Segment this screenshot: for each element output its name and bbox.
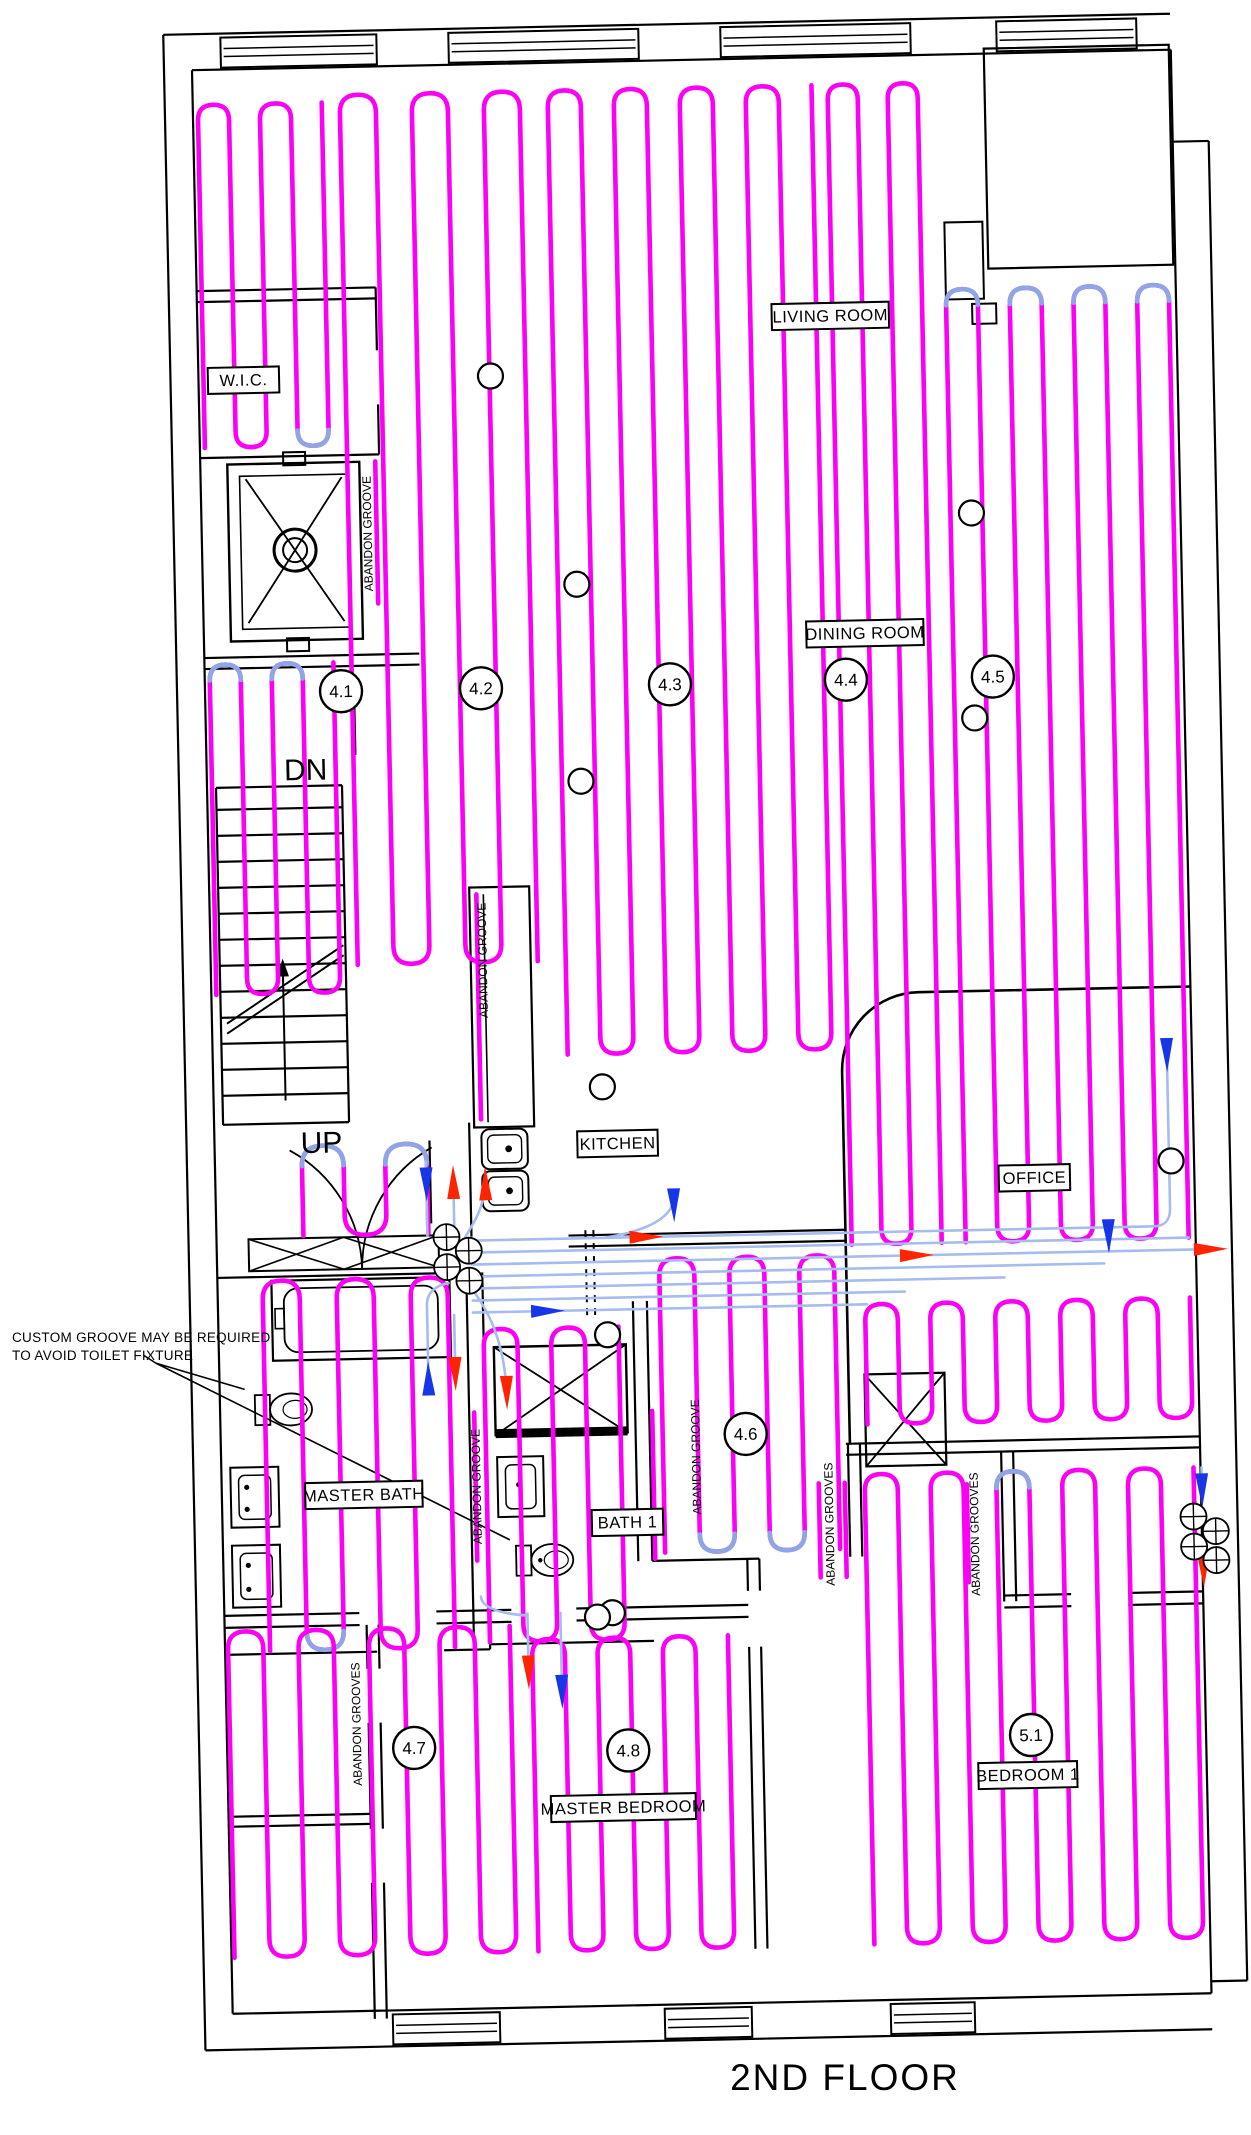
custom-groove-note-line2: TO AVOID TOILET FIXTURE <box>12 1348 193 1363</box>
supply-line <box>560 1613 562 1685</box>
fixture-dot <box>244 1485 249 1490</box>
window <box>720 23 911 57</box>
abandoned-groove <box>819 1483 821 1577</box>
fixture-dot <box>246 1563 251 1568</box>
wall-line <box>225 1652 377 1655</box>
floor-sensor <box>568 768 594 794</box>
supply-line <box>471 1286 507 1401</box>
zone-tag: 4.4 <box>834 670 858 689</box>
skylight-cross <box>246 477 345 623</box>
fixture-dot <box>506 1187 513 1194</box>
loop-return-bend <box>770 1532 805 1550</box>
wall-line <box>163 35 205 2051</box>
loop-return-bend <box>209 664 240 680</box>
wall-line <box>846 1436 1200 1443</box>
window <box>448 29 639 63</box>
zone-tag: 5.1 <box>1019 1726 1043 1745</box>
wall-line <box>1209 141 1248 1981</box>
room-label: MASTER BEDROOM <box>541 1797 707 1818</box>
wall-line <box>860 1444 862 1557</box>
fixture-dot <box>505 1145 512 1152</box>
flow-arrow-supply <box>900 1248 934 1262</box>
room-label: LIVING ROOM <box>772 306 888 326</box>
zone-tag: 4.3 <box>658 675 682 694</box>
zone-tag: 4.5 <box>981 667 1005 686</box>
wall-line <box>1013 1451 1016 1601</box>
wall-line <box>381 1723 383 1829</box>
wall-line <box>197 298 376 302</box>
wall-line <box>224 1613 359 1616</box>
sheet-title: 2ND FLOOR <box>730 2057 960 2098</box>
wall-line <box>846 1447 1200 1454</box>
heating-loop-wic <box>198 103 329 449</box>
bathtub-inner <box>284 1285 439 1352</box>
floor-sensor <box>959 500 985 526</box>
flow-arrow-return <box>1195 1473 1209 1507</box>
page: W.I.C.LIVING ROOMDINING ROOMKITCHENOFFIC… <box>0 0 1251 2135</box>
room-label: BEDROOM 1 <box>976 1765 1080 1785</box>
custom-groove-note-line1: CUSTOM GROOVE MAY BE REQUIRED <box>12 1330 271 1345</box>
supply-line <box>473 1292 905 1301</box>
abandoned-groove <box>652 1411 655 1559</box>
annotation-text: ABANDON GROOVES <box>821 1462 838 1586</box>
room-label: MASTER BATH <box>303 1485 425 1506</box>
wall-line <box>761 1647 767 1949</box>
loop-return-bend <box>1137 285 1169 302</box>
annotation-text: ABANDON GROOVE <box>360 476 376 592</box>
curved-wall <box>840 987 1199 1444</box>
annotation-text: ABANDON GROOVE <box>474 903 490 1019</box>
wall-line <box>1171 50 1212 1994</box>
loop-return-bend <box>271 663 302 679</box>
wall-line <box>217 833 343 836</box>
wall-line <box>216 807 342 810</box>
heating-loop-4.1 <box>209 662 340 995</box>
window <box>665 2007 753 2039</box>
wall-line <box>223 1122 349 1125</box>
annotation-text: ABANDON GROOVE <box>469 1429 485 1545</box>
wall-line <box>197 287 376 291</box>
flow-arrow-return <box>667 1188 681 1222</box>
abandoned-groove <box>845 1483 847 1577</box>
zone-tag: 4.7 <box>402 1739 426 1758</box>
annotation-text: ABANDON GROOVES <box>348 1662 365 1786</box>
sink <box>232 1545 281 1608</box>
wall-line <box>342 785 349 1122</box>
flow-arrow-return <box>531 1304 565 1318</box>
annotation-text: UP <box>300 1126 342 1160</box>
wall-line <box>759 1559 760 1591</box>
heating-loop-5.1 <box>865 1468 1204 1945</box>
loop-return-bend <box>1073 286 1105 303</box>
flow-arrow-return <box>1160 1038 1174 1072</box>
wall-line <box>469 1123 471 1237</box>
wall-line <box>747 1559 748 1591</box>
room-label: OFFICE <box>1002 1169 1066 1188</box>
heating-loop-4.5 <box>946 285 1189 1242</box>
floor-sensor <box>595 1322 621 1348</box>
floor-sensor <box>585 1604 611 1630</box>
fixture-dot <box>538 1558 542 1562</box>
shower-cross <box>494 1344 628 1435</box>
supply-line <box>472 1238 1189 1253</box>
room-label: KITCHEN <box>579 1134 655 1154</box>
tub-faucet <box>275 1309 284 1329</box>
wall-line <box>219 911 345 914</box>
annotation-text: ABANDON GROOVES <box>967 1472 984 1596</box>
fixture-dot <box>246 1587 251 1592</box>
toilet-bowl <box>531 1544 574 1577</box>
annotation-text: DN <box>284 754 328 788</box>
supply-line <box>468 1056 1170 1241</box>
closet <box>248 1235 439 1271</box>
wall-line <box>200 454 379 458</box>
kitchen-sink-basin <box>487 1135 522 1164</box>
wall-line <box>1004 1606 1071 1607</box>
wall-line <box>1128 1603 1203 1605</box>
fixture-dot <box>244 1507 249 1512</box>
roof-opening <box>984 45 1174 269</box>
wall-line <box>384 1883 387 2019</box>
supply-line <box>603 1196 675 1237</box>
wall-line <box>1004 1594 1071 1595</box>
loop-return-bend <box>298 430 329 446</box>
floor-sensor <box>1158 1148 1184 1174</box>
room-label: W.I.C. <box>219 371 267 390</box>
heating-loop-office <box>865 1298 1192 1425</box>
floor-sensor <box>590 1074 616 1100</box>
wall-line <box>225 1625 360 1628</box>
window <box>891 2002 976 2034</box>
flow-arrow-return <box>1102 1219 1116 1253</box>
closet-cross <box>248 1235 439 1271</box>
wall-line <box>1173 141 1209 142</box>
wall-line <box>218 859 344 862</box>
wall-line <box>444 1649 490 1650</box>
wall-line <box>652 1559 759 1561</box>
flow-arrow-supply <box>1194 1242 1228 1256</box>
floorplan-drawing: W.I.C.LIVING ROOMDINING ROOMKITCHENOFFIC… <box>0 0 1251 2135</box>
wall-line <box>749 1647 755 1949</box>
heating-loop-4.6 <box>659 1255 840 1553</box>
kitchen-sink-basin <box>488 1177 523 1206</box>
floor-sensor <box>564 572 590 598</box>
wall-line <box>376 287 377 350</box>
zone-tag: 4.1 <box>329 682 353 701</box>
wall-line <box>218 885 344 888</box>
supply-line <box>472 1263 1104 1276</box>
wall-line <box>229 1824 371 1827</box>
flow-arrow-supply <box>500 1376 514 1410</box>
floor-sensor <box>962 705 988 731</box>
wall-line <box>1128 1591 1203 1593</box>
window <box>393 2012 501 2044</box>
flow-arrow-supply <box>446 1165 460 1199</box>
wall-line <box>1211 1981 1247 1982</box>
window <box>220 34 377 67</box>
floor-sensor <box>478 363 504 389</box>
room-label: BATH 1 <box>598 1513 658 1532</box>
supply-line <box>527 1614 528 1660</box>
annotation-text: ABANDON GROOVE <box>688 1399 704 1515</box>
loop-return-bend <box>1009 287 1041 304</box>
shower-curb <box>496 1426 628 1438</box>
wall-line <box>848 1444 850 1557</box>
supply-line <box>473 1277 1005 1288</box>
flow-arrow-return <box>422 1361 436 1395</box>
plan-geometry: W.I.C.LIVING ROOMDINING ROOMKITCHENOFFIC… <box>116 13 1248 2051</box>
zone-tag: 4.8 <box>616 1741 640 1760</box>
wall-line <box>219 937 345 940</box>
wall-line <box>437 1622 512 1624</box>
heating-loop-4.3 <box>548 85 832 1054</box>
toilet-bowl <box>270 1393 313 1426</box>
zone-tag: 4.2 <box>469 679 493 698</box>
wall-line <box>229 1814 371 1817</box>
loop-return-bend <box>700 1534 735 1552</box>
zone-tag: 4.6 <box>734 1425 758 1444</box>
room-label: DINING ROOM <box>805 623 925 643</box>
flow-arrow-supply <box>629 1230 663 1244</box>
wall-line <box>378 404 379 454</box>
